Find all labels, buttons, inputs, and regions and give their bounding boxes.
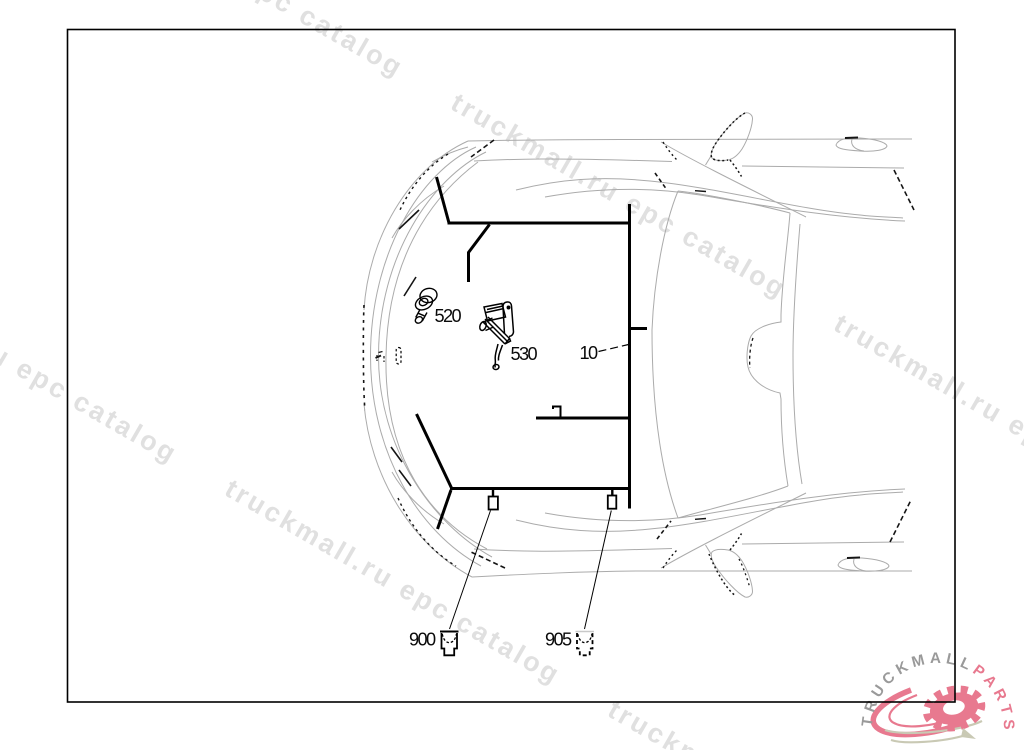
svg-text:truckmall.ru epc catalog: truckmall.ru epc catalog <box>829 308 1024 525</box>
svg-text:900: 900 <box>409 630 436 650</box>
svg-text:10: 10 <box>580 343 599 363</box>
svg-text:520: 520 <box>435 306 462 326</box>
svg-text:530: 530 <box>511 344 538 364</box>
svg-text:truckmall.ru epc catalog: truckmall.ru epc catalog <box>220 473 566 690</box>
svg-text:truckmall.ru epc catalog: truckmall.ru epc catalog <box>63 0 409 84</box>
svg-text:truckmall.ru epc catalog: truckmall.ru epc catalog <box>0 252 183 469</box>
svg-text:truckmall.ru epc catalog: truckmall.ru epc catalog <box>446 87 792 304</box>
svg-text:905: 905 <box>545 630 572 650</box>
